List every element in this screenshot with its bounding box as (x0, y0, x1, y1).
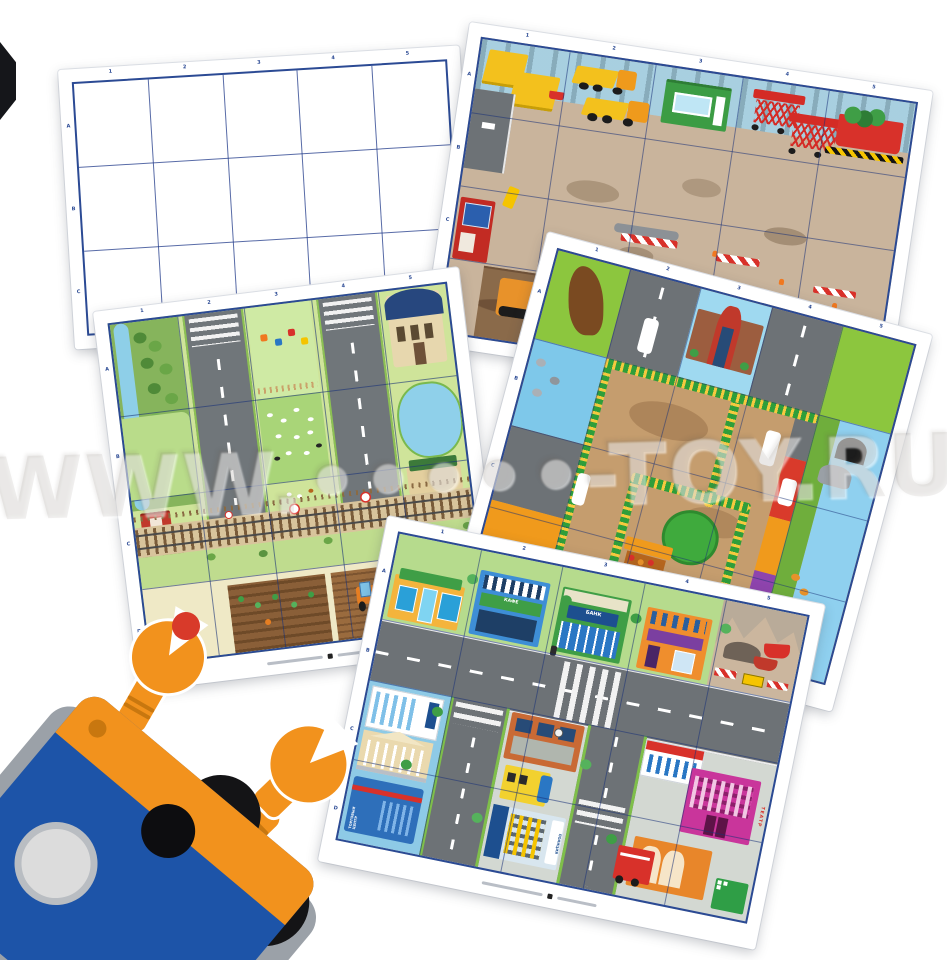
gridline (148, 79, 164, 329)
part (371, 691, 419, 731)
part (615, 874, 624, 884)
construction-corner (706, 600, 807, 702)
gridline (222, 75, 238, 325)
pond (393, 379, 467, 462)
part (396, 326, 406, 343)
part (671, 92, 712, 118)
gridline (84, 228, 455, 252)
barrier-stripe-icon (767, 680, 789, 692)
logo-dot (547, 893, 553, 899)
crosswalk (553, 661, 621, 729)
part (670, 650, 696, 675)
fine-print-bar (481, 881, 542, 896)
part (620, 852, 650, 861)
dirt-patch (681, 176, 723, 199)
fine-print-bar (557, 896, 597, 907)
dirt-mound (625, 394, 712, 449)
barrier-stripe-icon (714, 667, 737, 679)
barrier-stripe-icon (715, 253, 759, 267)
part (462, 203, 492, 230)
part (712, 96, 725, 126)
corner-object-edge (0, 42, 16, 120)
part (383, 285, 444, 321)
gnarly-tree-icon (568, 266, 605, 336)
part (616, 69, 637, 91)
part (788, 148, 796, 155)
yellow-sign-icon (742, 673, 764, 688)
part (458, 232, 476, 253)
road-piece (463, 89, 516, 174)
route-label-pill (759, 429, 782, 467)
part (359, 582, 372, 598)
red-container-icon (452, 197, 496, 263)
crosswalk (189, 314, 240, 347)
hens-dots (287, 492, 292, 497)
part (510, 735, 575, 766)
lane-dashes (217, 358, 238, 505)
robot-mascot-graphic (0, 636, 360, 960)
gridline (79, 144, 450, 168)
barrier-stripe-icon (812, 285, 856, 299)
qr-code-badge (710, 877, 749, 914)
sheep-dots (266, 413, 272, 418)
wheelbarrow-icon (764, 644, 790, 659)
police-station-icon: ПОЛИЦИЯ (483, 803, 567, 870)
playground-dots (260, 334, 268, 342)
part (377, 800, 414, 836)
vet-clinic-icon (636, 606, 714, 680)
lane-dashes (449, 737, 476, 855)
product-photo-robot-play-mats: 12345 ABC 12345 ABCD (0, 0, 947, 960)
yellow-sign-icon (502, 185, 520, 208)
part (503, 814, 546, 861)
part (394, 585, 417, 613)
part (644, 645, 660, 669)
cafe-building-icon: КАФЕ (469, 569, 551, 647)
veg-dots (238, 596, 245, 603)
robot-mascot (0, 636, 360, 960)
wheelbarrow-icon (752, 656, 778, 673)
part (507, 772, 516, 782)
site-cabin-icon (661, 79, 733, 133)
part (413, 342, 426, 365)
music-school-icon (499, 765, 551, 808)
clock-dot (553, 727, 564, 738)
path-border-dotted (630, 472, 750, 513)
gridline (297, 70, 313, 320)
part (587, 113, 598, 122)
orchard-block (121, 412, 198, 501)
tree-dots (133, 332, 147, 345)
playground-block (246, 301, 321, 400)
school-building-icon (385, 290, 447, 368)
lane-dashes (351, 342, 372, 489)
part (689, 775, 754, 819)
part (751, 124, 759, 131)
fence-line (258, 381, 317, 394)
part (416, 588, 437, 624)
fire-truck-icon (612, 845, 656, 886)
bank-building-icon: БАНК (550, 586, 632, 664)
sheep-meadow (257, 392, 331, 484)
part (626, 101, 650, 124)
rock-dots (535, 357, 547, 367)
part (579, 82, 590, 91)
lane-dashes (785, 325, 807, 396)
part (481, 122, 495, 129)
crosswalk (323, 297, 374, 330)
